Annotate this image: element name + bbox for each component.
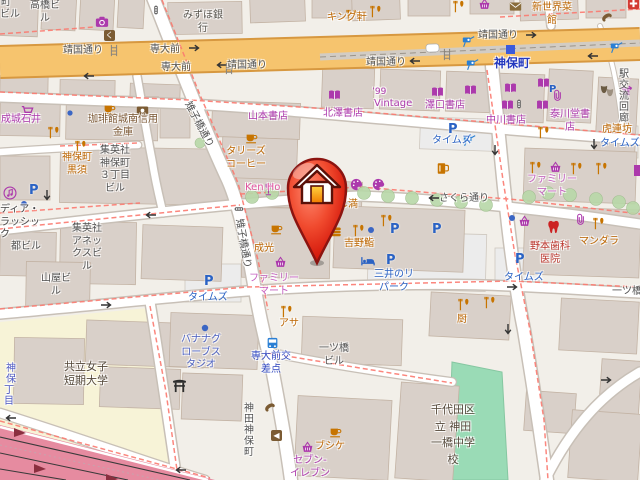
- map-canvas[interactable]: 町 ビル 高橋ビ ル みずほ銀 行 キング軒 新世界菜 館 靖国通り 専大前 専…: [0, 0, 640, 480]
- location-pin-house[interactable]: [0, 0, 640, 480]
